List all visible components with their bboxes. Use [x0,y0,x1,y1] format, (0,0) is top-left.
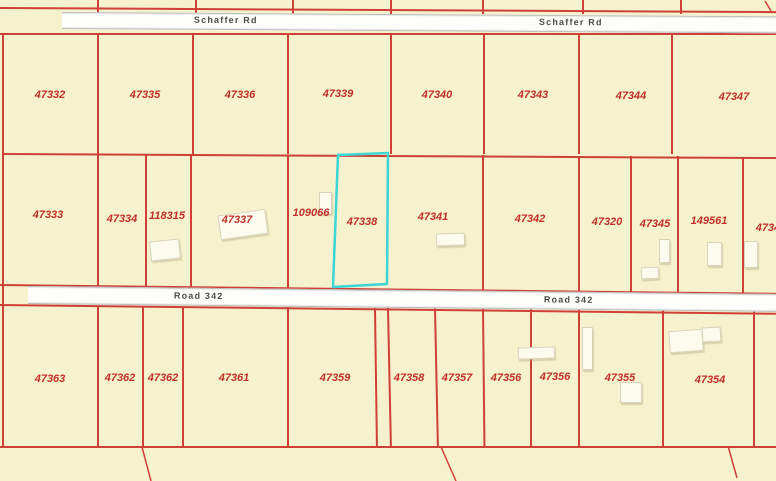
parcel-boundary-line [142,307,144,447]
parcel-label: 47361 [219,372,250,384]
building-footprint [707,242,722,266]
building-footprint [744,241,758,268]
parcel-label: 47320 [592,216,623,228]
parcel-boundary-line [671,33,673,154]
parcel-boundary-line [530,308,532,447]
parcel-boundary-line [145,155,147,288]
parcel-boundary-line [182,307,184,447]
parcel-boundary-line [482,0,484,14]
parcel-boundary-line [2,153,776,159]
building-footprint [620,382,642,403]
parcel-label: 47357 [442,372,473,384]
parcel-label: 109066 [293,207,330,219]
parcel-boundary-line [97,33,99,154]
parcel-boundary-line [680,0,682,14]
parcel-label: 47356 [540,371,571,383]
parcel-label: 47334 [107,213,138,225]
building-footprint [659,239,670,263]
parcel-label: 47362 [148,372,179,384]
parcel-label: 47355 [605,372,636,384]
parcel-label: 47362 [105,372,136,384]
parcel-label: 47356 [491,372,522,384]
parcel-label: 47340 [422,89,453,101]
parcel-boundary-line [190,155,192,288]
parcel-label: 47333 [33,209,64,221]
building-footprint [702,327,722,343]
parcel-boundary-line [677,156,679,293]
building-footprint [668,329,703,353]
parcel-boundary-line [578,156,580,291]
parcel-label: 47347 [719,91,750,103]
building-footprint [582,327,593,370]
parcel-boundary-line [441,447,456,481]
parcel-boundary-line [97,307,99,447]
parcel-label: 47359 [320,372,351,384]
road-342-label-left: Road 342 [174,291,224,302]
parcel-boundary-line [287,33,289,154]
parcel-label: 47336 [225,89,256,101]
parcel-boundary-line [374,308,377,447]
parcel-boundary-line [434,308,438,447]
parcel-boundary-line [287,307,289,447]
parcel-boundary-line [390,33,392,154]
parcel-label: 118315 [149,210,185,222]
parcel-boundary-line [482,155,484,290]
parcel-boundary-line [390,0,392,14]
building-footprint [149,238,181,261]
road-342-label-right: Road 342 [544,294,594,305]
parcel-boundary-line [0,446,776,448]
parcel-label: 47344 [616,90,647,102]
parcel-map-canvas[interactable]: Schaffer Rd Schaffer Rd Road 342 Road 34… [0,0,776,481]
parcel-label: 4734 [756,222,776,234]
parcel-label: 47363 [35,373,66,385]
parcel-boundary-line [578,309,580,447]
parcel-label: 47343 [518,89,549,101]
parcel-boundary-line [287,155,289,288]
schaffer-rd-label-right: Schaffer Rd [539,17,603,27]
parcel-label: 47335 [130,89,161,101]
parcel-label: 149561 [691,215,728,227]
parcel-boundary-line [97,155,99,288]
building-footprint [518,346,555,359]
schaffer-rd-label-left: Schaffer Rd [194,15,258,25]
parcel-label: 47358 [394,372,425,384]
parcel-boundary-line [192,33,194,154]
parcel-label: 47354 [695,374,726,386]
parcel-boundary-line [728,446,737,478]
parcel-boundary-line [483,33,485,154]
parcel-boundary-line [765,1,771,11]
parcel-boundary-line [578,33,580,154]
parcel-label: 47337 [222,214,253,226]
parcel-boundary-line [2,33,4,447]
parcel-boundary-line [387,308,391,447]
parcel-boundary-line [742,157,744,294]
parcel-boundary-line [630,156,632,292]
building-footprint [641,267,660,280]
parcel-label: 47332 [35,89,66,101]
building-footprint [436,232,465,246]
parcel-boundary-line [0,33,776,35]
highlighted-parcel-label: 47338 [347,216,378,228]
parcel-label: 47345 [640,218,671,230]
parcel-label: 47339 [323,88,354,100]
parcel-boundary-line [582,0,584,14]
parcel-label: 47341 [418,211,449,223]
parcel-boundary-line [482,308,485,447]
schaffer-rd-road: Schaffer Rd Schaffer Rd [62,12,776,33]
parcel-label: 47342 [515,213,546,225]
parcel-boundary-line [662,309,664,447]
parcel-boundary-line [292,0,294,14]
parcel-boundary-line [753,310,755,446]
parcel-boundary-line [142,447,151,481]
